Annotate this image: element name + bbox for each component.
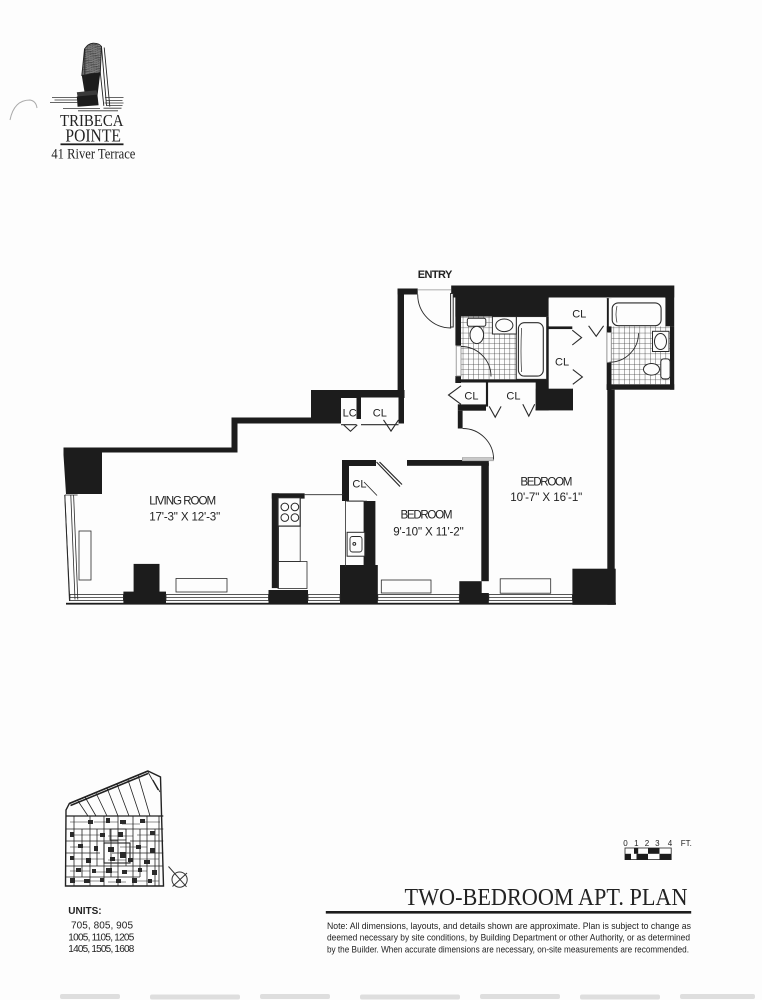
svg-text:2: 2 xyxy=(645,839,650,848)
svg-text:10'-7" X 16'-1": 10'-7" X 16'-1" xyxy=(510,491,582,504)
svg-text:1405, 1505, 1608: 1405, 1505, 1608 xyxy=(68,944,134,955)
svg-text:Note: All dimensions, layouts,: Note: All dimensions, layouts, and detai… xyxy=(327,921,692,931)
svg-text:CL: CL xyxy=(464,391,478,403)
svg-text:LIVING ROOM: LIVING ROOM xyxy=(149,495,216,508)
svg-text:9'-10" X 11'-2": 9'-10" X 11'-2" xyxy=(393,526,464,539)
svg-text:ENTRY: ENTRY xyxy=(418,269,453,281)
svg-text:by the Builder. When accurate: by the Builder. When accurate dimensions… xyxy=(327,945,689,955)
svg-text:1: 1 xyxy=(634,839,639,848)
svg-text:POINTE: POINTE xyxy=(65,126,121,146)
svg-text:deemed necessary by site condi: deemed necessary by site conditions, by … xyxy=(327,933,690,943)
svg-text:CL: CL xyxy=(352,479,366,491)
svg-text:0: 0 xyxy=(623,839,628,848)
svg-text:CL: CL xyxy=(572,309,586,321)
svg-text:3: 3 xyxy=(655,839,660,848)
svg-text:FT.: FT. xyxy=(681,839,692,848)
svg-text:UNITS:: UNITS: xyxy=(68,906,101,917)
svg-text:BEDROOM: BEDROOM xyxy=(401,509,453,522)
svg-text:LC: LC xyxy=(343,408,357,420)
svg-text:17'-3" X 12'-3": 17'-3" X 12'-3" xyxy=(149,511,220,524)
svg-text:CL: CL xyxy=(506,391,520,403)
svg-text:705, 805, 905: 705, 805, 905 xyxy=(71,921,133,932)
svg-text:4: 4 xyxy=(668,839,673,848)
svg-text:41 River Terrace: 41 River Terrace xyxy=(51,147,135,163)
svg-text:1005, 1105, 1205: 1005, 1105, 1205 xyxy=(68,932,134,943)
svg-text:BEDROOM: BEDROOM xyxy=(520,476,572,489)
svg-text:CL: CL xyxy=(555,357,569,369)
svg-text:CL: CL xyxy=(373,408,387,420)
svg-text:TWO-BEDROOM APT. PLAN: TWO-BEDROOM APT. PLAN xyxy=(405,884,688,911)
